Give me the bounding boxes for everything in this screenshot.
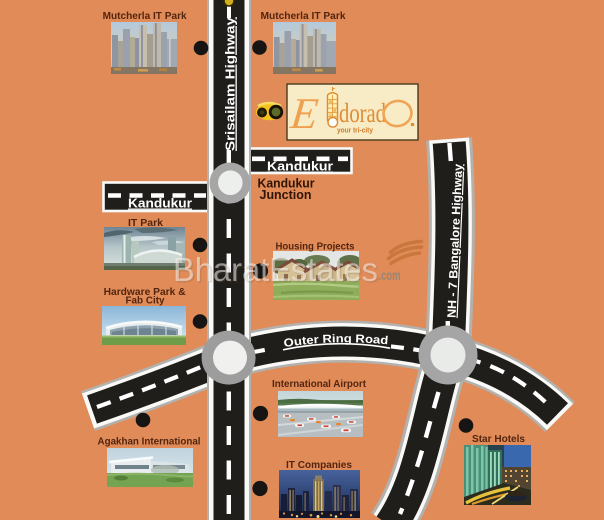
svg-text:E: E <box>288 89 321 138</box>
svg-text:IT Park: IT Park <box>128 217 163 229</box>
svg-text:Junction: Junction <box>260 188 312 202</box>
svg-text:BharatEstates: BharatEstates <box>173 251 378 288</box>
svg-text:International Airport: International Airport <box>272 378 366 390</box>
svg-text:Srisailam Highway: Srisailam Highway <box>223 16 238 151</box>
svg-text:Kandukur: Kandukur <box>267 160 333 174</box>
svg-text:Mutcherla IT Park: Mutcherla IT Park <box>261 10 346 22</box>
svg-text:Agakhan International: Agakhan International <box>98 436 201 448</box>
svg-text:Star Hotels: Star Hotels <box>472 433 525 445</box>
svg-text:Mutcherla IT Park: Mutcherla IT Park <box>103 10 187 22</box>
svg-text:.com: .com <box>379 267 401 283</box>
svg-text:IT Companies: IT Companies <box>286 459 352 471</box>
svg-text:dorad: dorad <box>339 98 386 128</box>
svg-text:your tri-city: your tri-city <box>337 126 374 135</box>
svg-text:Kandukur: Kandukur <box>128 197 192 211</box>
svg-text:Fab City: Fab City <box>126 295 165 307</box>
